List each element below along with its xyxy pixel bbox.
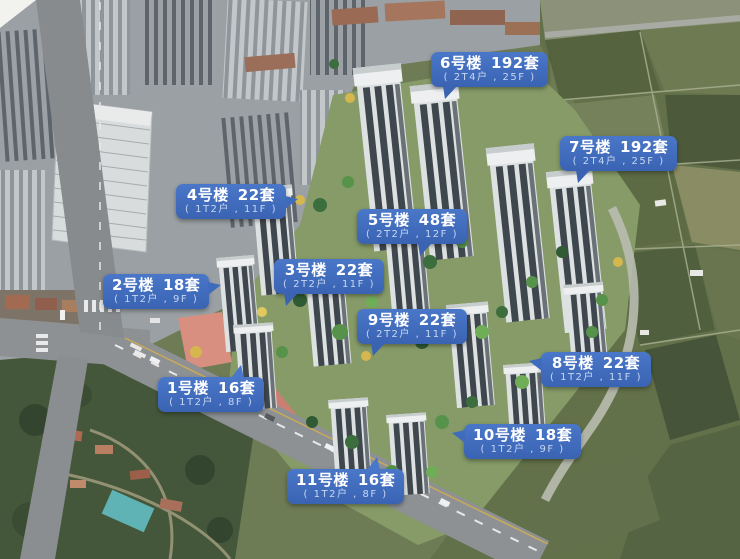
label-pointer-icon (529, 358, 542, 371)
building-units: 18套 (163, 276, 200, 294)
building-title: 10号楼18套 (473, 426, 572, 444)
building-name: 2号楼 (112, 276, 154, 294)
building-label-2[interactable]: 2号楼18套 ( 1T2户 , 9F ) (103, 274, 209, 309)
building-spec: ( 1T2户 , 11F ) (185, 204, 277, 216)
building-spec: ( 2T4户 , 25F ) (569, 156, 668, 168)
label-pointer-icon (443, 86, 457, 99)
building-spec: ( 2T2户 , 12F ) (366, 229, 458, 241)
building-title: 7号楼192套 (569, 138, 668, 156)
building-title: 4号楼22套 (185, 186, 277, 204)
building-label-11[interactable]: 11号楼16套 ( 1T2户 , 8F ) (287, 469, 404, 504)
building-title: 11号楼16套 (296, 471, 395, 489)
building-name: 8号楼 (552, 354, 594, 372)
building-name: 6号楼 (440, 54, 482, 72)
label-pointer-icon (418, 243, 432, 256)
building-title: 1号楼16套 (167, 379, 255, 397)
building-label-1[interactable]: 1号楼16套 ( 1T2户 , 8F ) (158, 377, 264, 412)
label-pointer-icon (371, 343, 385, 356)
building-name: 1号楼 (167, 379, 209, 397)
building-title: 2号楼18套 (112, 276, 200, 294)
building-title: 6号楼192套 (440, 54, 539, 72)
aerial-site-image: 1号楼16套 ( 1T2户 , 8F ) 2号楼18套 ( 1T2户 , 9F … (0, 0, 740, 559)
building-name: 7号楼 (569, 138, 611, 156)
building-label-8[interactable]: 8号楼22套 ( 1T2户 , 11F ) (541, 352, 651, 387)
building-name: 11号楼 (296, 471, 349, 489)
building-title: 8号楼22套 (550, 354, 642, 372)
building-units: 16套 (358, 471, 395, 489)
building-label-7[interactable]: 7号楼192套 ( 2T4户 , 25F ) (560, 136, 677, 171)
building-label-6[interactable]: 6号楼192套 ( 2T4户 , 25F ) (431, 52, 548, 87)
label-pointer-icon (231, 365, 244, 378)
building-title: 5号楼48套 (366, 211, 458, 229)
building-label-4[interactable]: 4号楼22套 ( 1T2户 , 11F ) (176, 184, 286, 219)
building-spec: ( 1T2户 , 8F ) (296, 489, 395, 501)
building-spec: ( 2T4户 , 25F ) (440, 72, 539, 84)
label-pointer-icon (208, 282, 221, 295)
building-name: 4号楼 (187, 186, 229, 204)
building-name: 9号楼 (368, 311, 410, 329)
label-pointer-icon (285, 196, 298, 209)
building-units: 22套 (336, 261, 373, 279)
building-name: 3号楼 (285, 261, 327, 279)
building-spec: ( 1T2户 , 11F ) (550, 372, 642, 384)
building-spec: ( 1T2户 , 9F ) (112, 294, 200, 306)
building-units: 192套 (491, 54, 539, 72)
building-spec: ( 1T2户 , 9F ) (473, 444, 572, 456)
building-label-10[interactable]: 10号楼18套 ( 1T2户 , 9F ) (464, 424, 581, 459)
building-name: 10号楼 (473, 426, 526, 444)
building-name: 5号楼 (368, 211, 410, 229)
label-pointer-icon (284, 293, 298, 306)
building-spec: ( 2T2户 , 11F ) (283, 279, 375, 291)
building-label-5[interactable]: 5号楼48套 ( 2T2户 , 12F ) (357, 209, 467, 244)
building-units: 22套 (603, 354, 640, 372)
building-units: 48套 (419, 211, 456, 229)
label-pointer-icon (452, 430, 465, 443)
building-spec: ( 1T2户 , 8F ) (167, 397, 255, 409)
building-title: 3号楼22套 (283, 261, 375, 279)
building-label-9[interactable]: 9号楼22套 ( 2T2户 , 11F ) (357, 309, 467, 344)
label-pointer-icon (576, 170, 590, 183)
building-units: 192套 (620, 138, 668, 156)
building-title: 9号楼22套 (366, 311, 458, 329)
building-units: 22套 (238, 186, 275, 204)
building-units: 18套 (535, 426, 572, 444)
building-units: 22套 (419, 311, 456, 329)
label-pointer-icon (367, 457, 380, 470)
building-spec: ( 2T2户 , 11F ) (366, 329, 458, 341)
building-units: 16套 (218, 379, 255, 397)
building-label-3[interactable]: 3号楼22套 ( 2T2户 , 11F ) (274, 259, 384, 294)
